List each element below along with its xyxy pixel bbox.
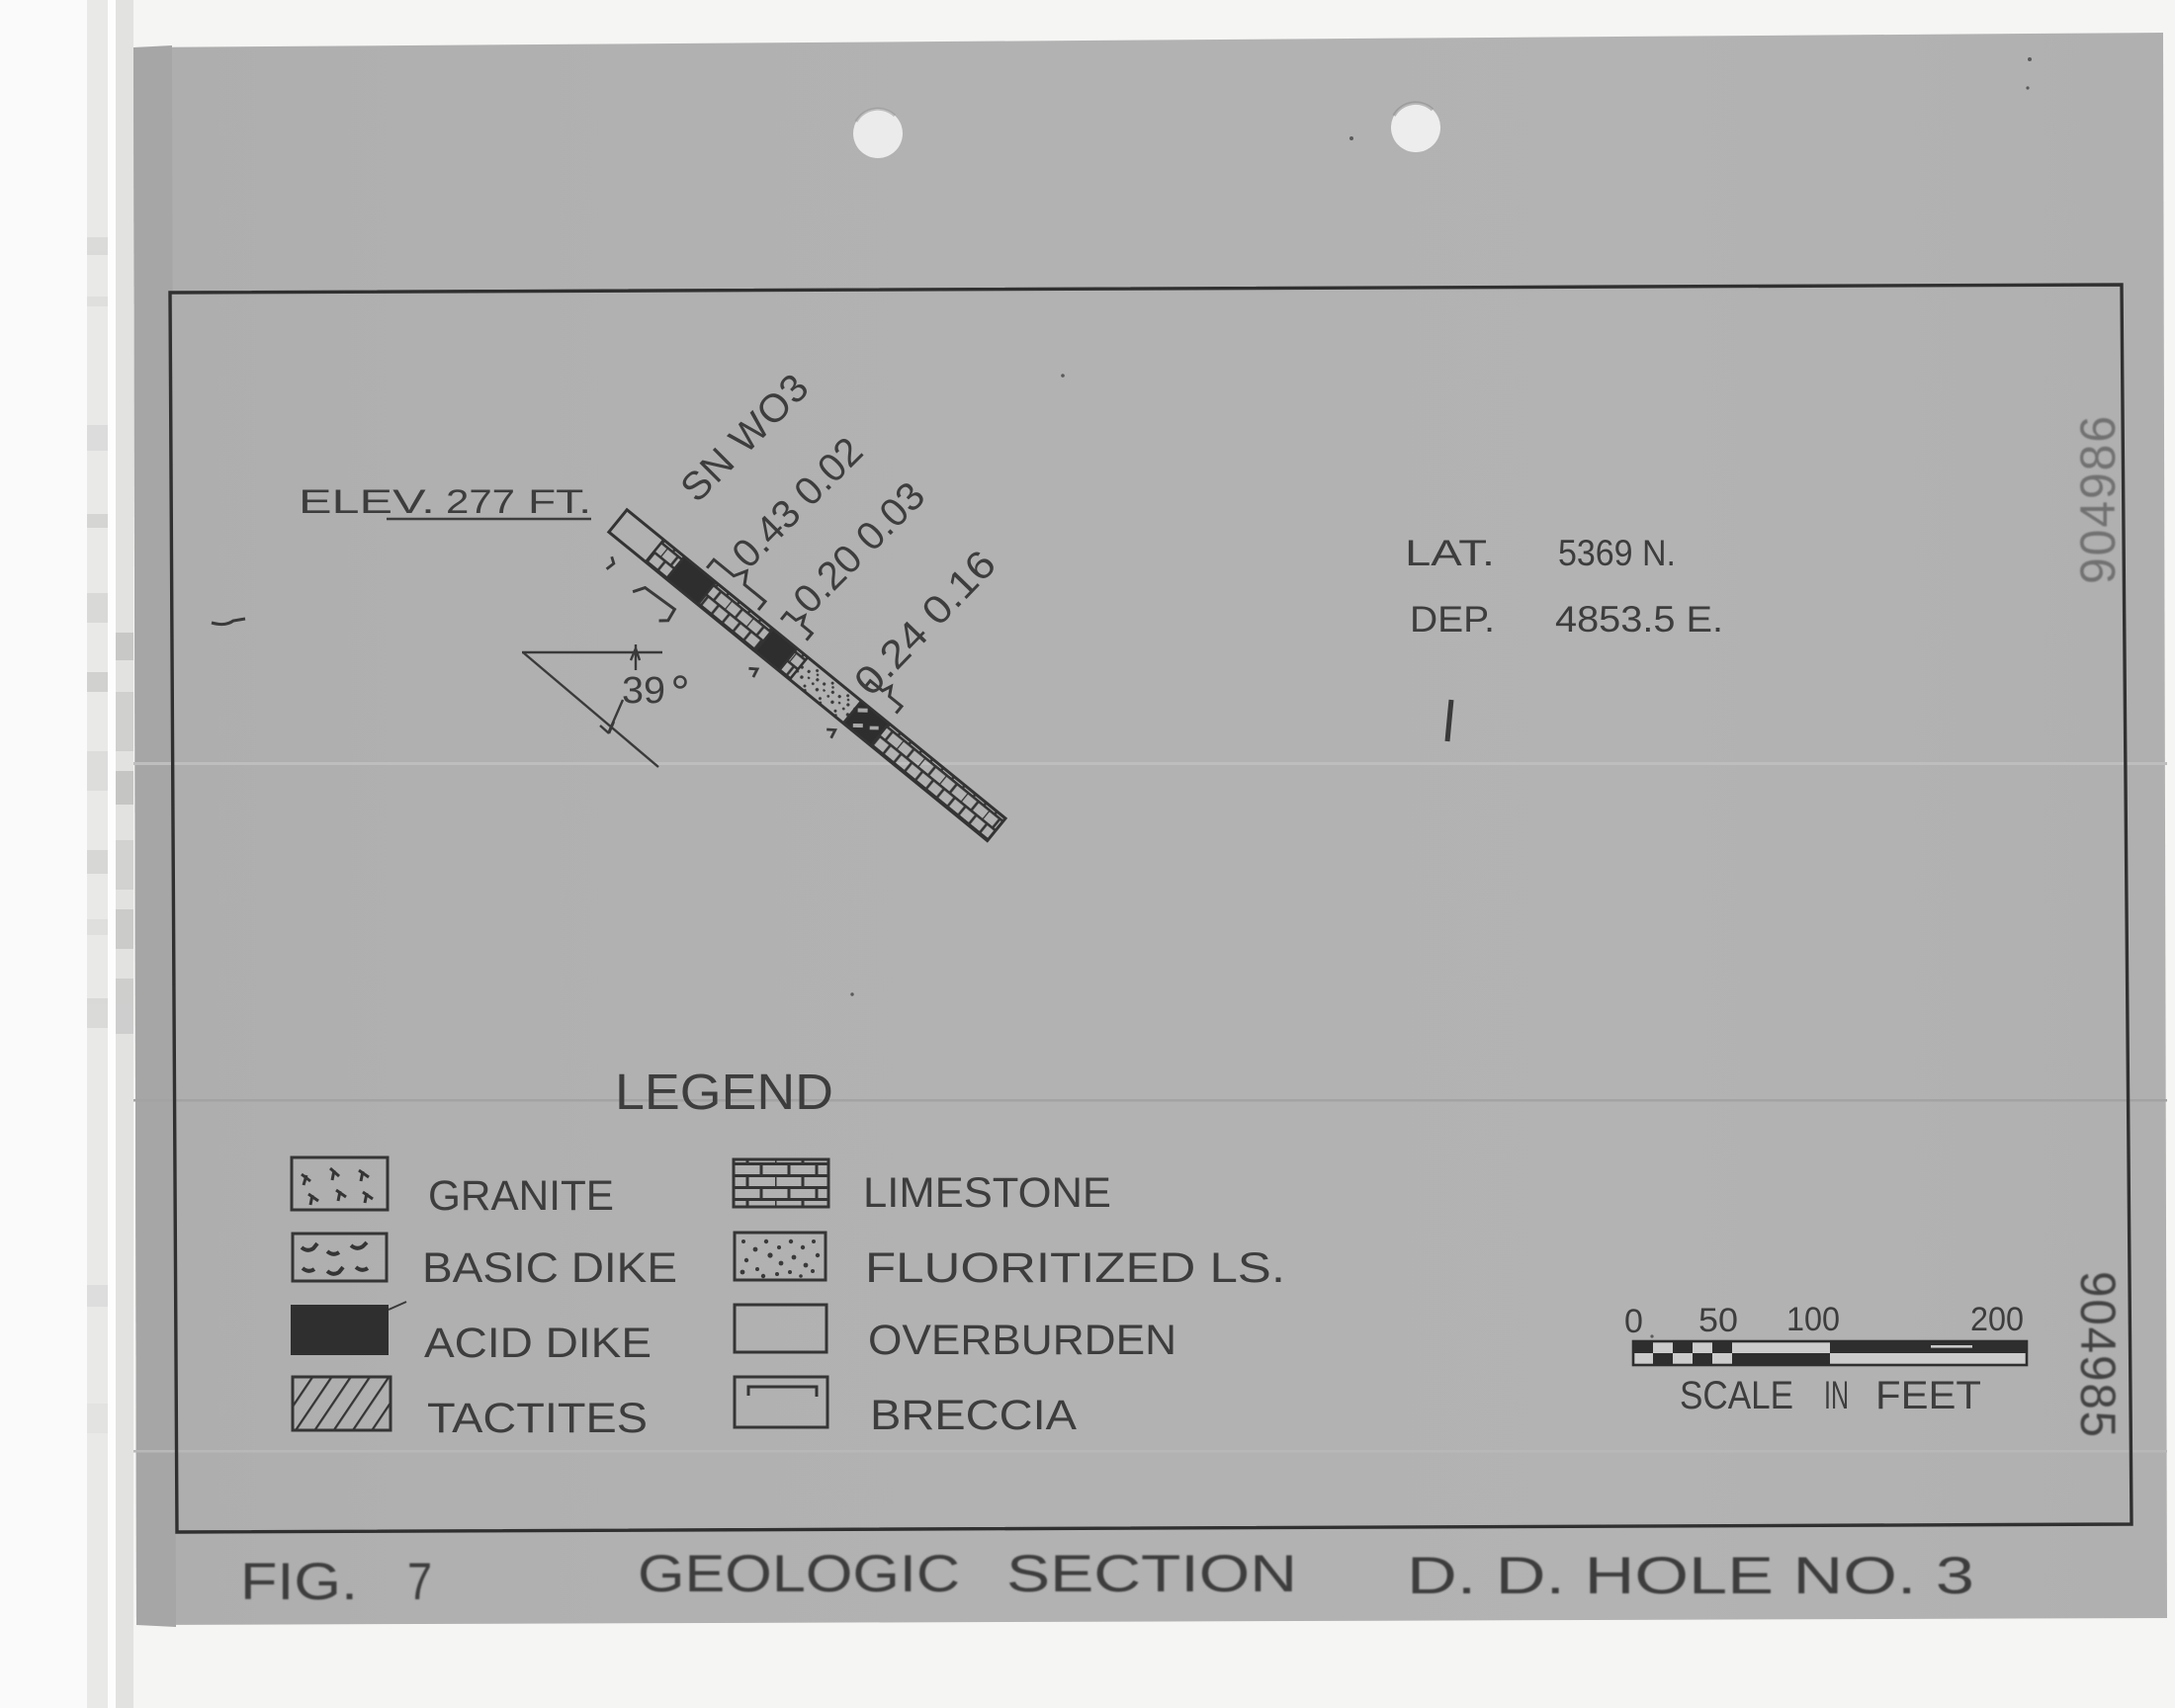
svg-text:100: 100: [1786, 1301, 1840, 1338]
svg-text:LIMESTONE: LIMESTONE: [863, 1169, 1111, 1217]
svg-text:50: 50: [1698, 1302, 1738, 1339]
svg-text:7: 7: [407, 1553, 432, 1611]
svg-text:FEET: FEET: [1875, 1374, 1981, 1417]
svg-text:904985: 904985: [2070, 1271, 2126, 1439]
svg-text:SCALE: SCALE: [1680, 1374, 1793, 1417]
svg-text:904986: 904986: [2070, 414, 2126, 584]
svg-text:FIG.: FIG.: [240, 1553, 358, 1611]
svg-text:ELEV.: ELEV.: [299, 483, 435, 521]
svg-text:D. D. HOLE NO. 3: D. D. HOLE NO. 3: [1407, 1547, 1974, 1605]
svg-text:LEGEND: LEGEND: [615, 1064, 833, 1120]
svg-text:OVERBURDEN: OVERBURDEN: [868, 1317, 1176, 1364]
svg-text:200: 200: [1970, 1301, 2024, 1338]
svg-text:FT.: FT.: [528, 483, 591, 521]
svg-text:BRECCIA: BRECCIA: [870, 1392, 1077, 1439]
svg-text:IN: IN: [1824, 1374, 1849, 1417]
svg-text:TACTITES: TACTITES: [427, 1395, 648, 1442]
svg-text:GEOLOGIC: GEOLOGIC: [638, 1545, 960, 1603]
svg-text:277: 277: [446, 483, 515, 521]
svg-text:DEP.: DEP.: [1410, 599, 1495, 640]
svg-text:LAT.: LAT.: [1405, 533, 1495, 573]
svg-text:BASIC DIKE: BASIC DIKE: [422, 1244, 677, 1292]
svg-text:GRANITE: GRANITE: [428, 1172, 614, 1220]
svg-text:ACID DIKE: ACID DIKE: [424, 1320, 652, 1367]
svg-text:5369 N.: 5369 N.: [1558, 533, 1676, 573]
svg-text:SECTION: SECTION: [1006, 1545, 1297, 1603]
svg-text:FLUORITIZED LS.: FLUORITIZED LS.: [865, 1244, 1285, 1292]
svg-text:4853.5 E.: 4853.5 E.: [1555, 599, 1723, 640]
svg-text:39: 39: [622, 670, 665, 712]
svg-text:0: 0: [1624, 1303, 1643, 1340]
